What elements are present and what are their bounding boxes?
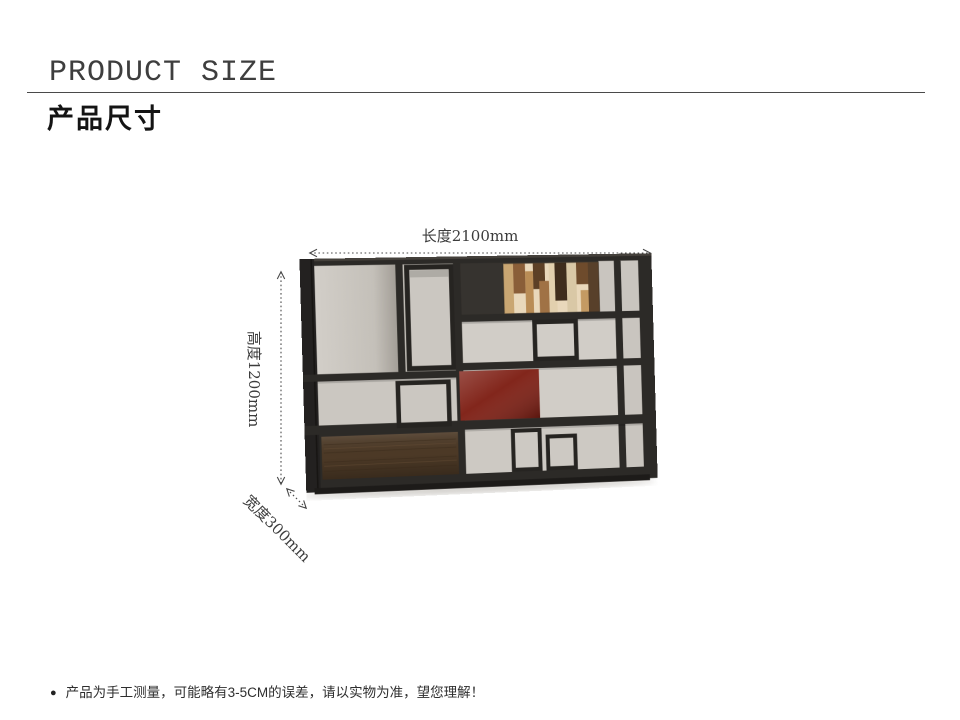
length-dimension-label: 长度2100mm: [295, 225, 645, 246]
note-text: 产品为手工测量，可能略有3-5CM的误差，请以实物为准，望您理解！: [66, 685, 485, 700]
page-title-zh: 产品尺寸: [47, 97, 163, 136]
height-dimension-label: 高度1200mm: [249, 319, 265, 439]
shelf-illustration: [299, 253, 657, 501]
width-arrow: [287, 489, 306, 508]
width-dimension-label: 宽度300mm: [239, 490, 315, 566]
product-size-page: PRODUCT SIZE 产品尺寸 长度2100mm 高度1200mm 宽度30…: [0, 0, 960, 720]
product-photo: [299, 253, 657, 501]
red-door-panel: [459, 369, 540, 421]
note-bullet-icon: ●: [50, 687, 57, 699]
header-divider: [27, 92, 925, 93]
wood-drawer: [321, 432, 459, 480]
page-title-en: PRODUCT SIZE: [49, 56, 277, 90]
art-blocks: [503, 262, 600, 314]
measurement-note: ●产品为手工测量，可能略有3-5CM的误差，请以实物为准，望您理解！: [50, 681, 484, 701]
